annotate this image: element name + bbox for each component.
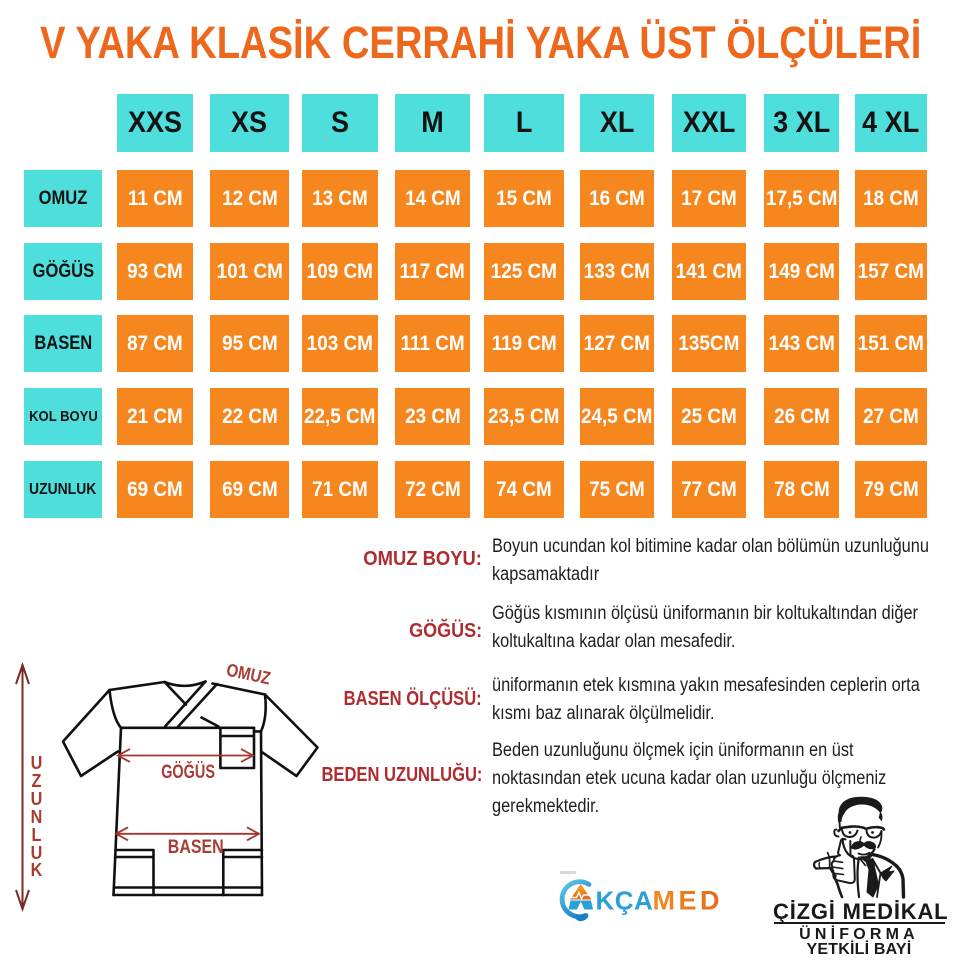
svg-text:MED: MED xyxy=(653,886,724,916)
svg-text:KÇA: KÇA xyxy=(596,886,654,916)
